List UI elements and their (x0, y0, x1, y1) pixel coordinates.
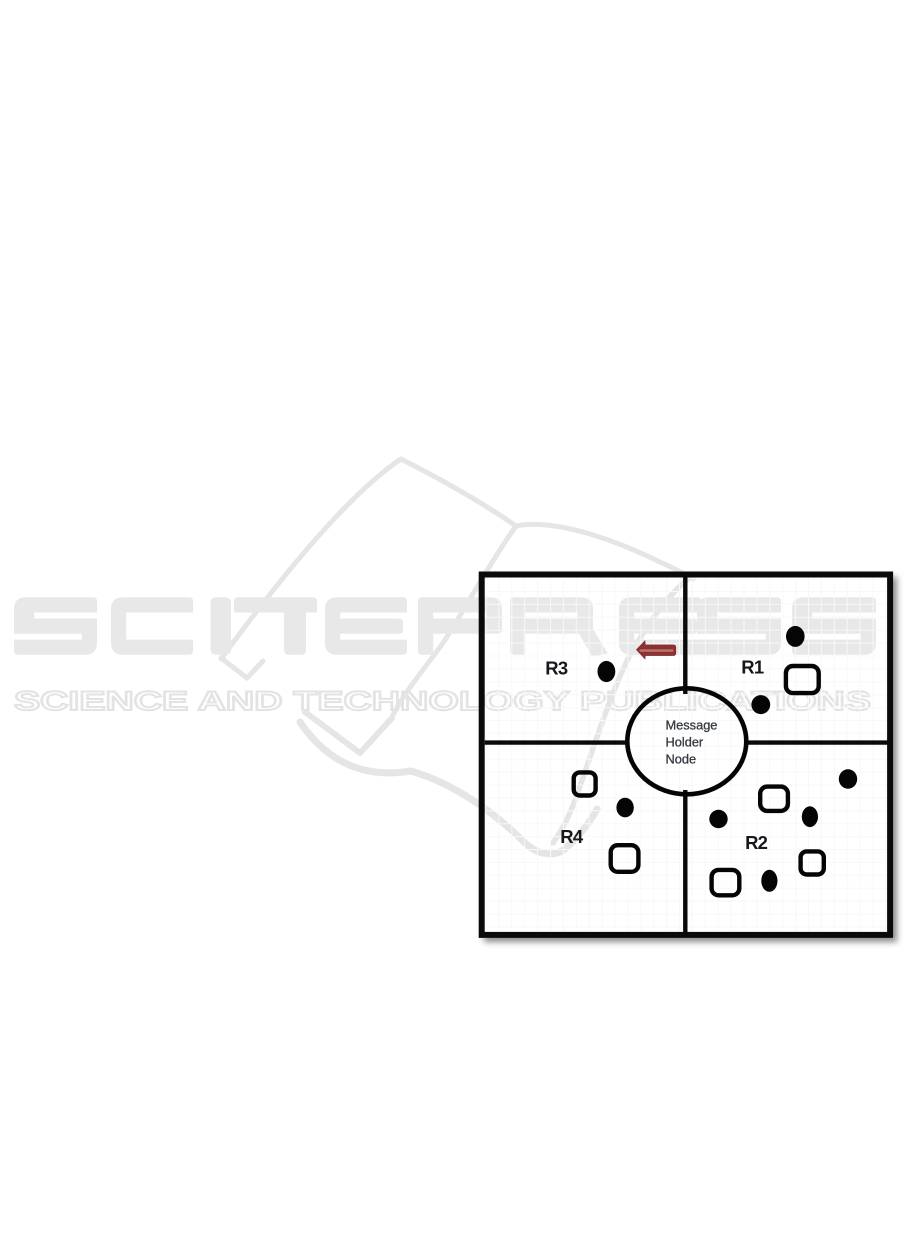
svg-text:R3: R3 (545, 658, 568, 679)
svg-text:Message: Message (666, 717, 718, 732)
svg-text:Node: Node (666, 751, 697, 766)
svg-text:Holder: Holder (666, 734, 704, 749)
svg-text:R4: R4 (560, 826, 584, 847)
svg-text:SCIENCE AND TECHNOLOGY PUBLICA: SCIENCE AND TECHNOLOGY PUBLICATIONS (14, 686, 871, 716)
svg-text:R2: R2 (745, 832, 768, 853)
svg-text:R1: R1 (741, 657, 764, 678)
